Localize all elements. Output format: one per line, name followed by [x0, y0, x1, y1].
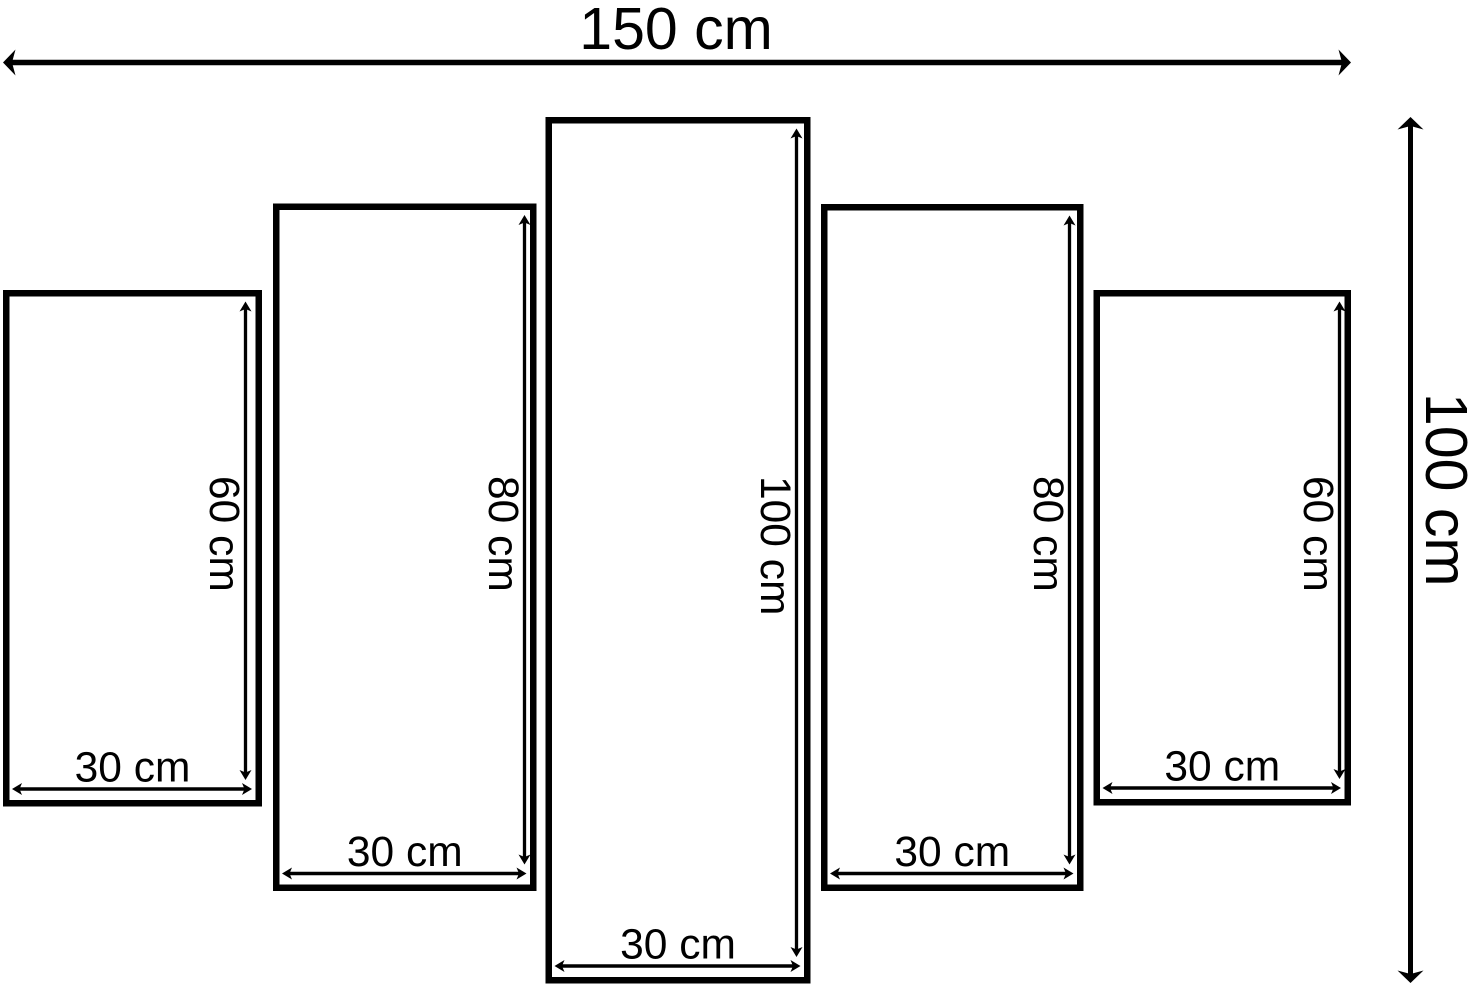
- svg-text:100 cm: 100 cm: [1413, 393, 1474, 586]
- svg-text:60 cm: 60 cm: [200, 476, 247, 592]
- svg-text:30 cm: 30 cm: [1164, 744, 1280, 791]
- svg-text:30 cm: 30 cm: [894, 829, 1010, 876]
- svg-text:60 cm: 60 cm: [1294, 476, 1341, 592]
- svg-text:80 cm: 80 cm: [479, 476, 526, 592]
- svg-text:100 cm: 100 cm: [751, 476, 798, 615]
- svg-text:150 cm: 150 cm: [579, 0, 772, 62]
- svg-text:80 cm: 80 cm: [1024, 476, 1071, 592]
- svg-text:30 cm: 30 cm: [75, 745, 191, 792]
- svg-text:30 cm: 30 cm: [620, 922, 736, 969]
- svg-text:30 cm: 30 cm: [347, 829, 463, 876]
